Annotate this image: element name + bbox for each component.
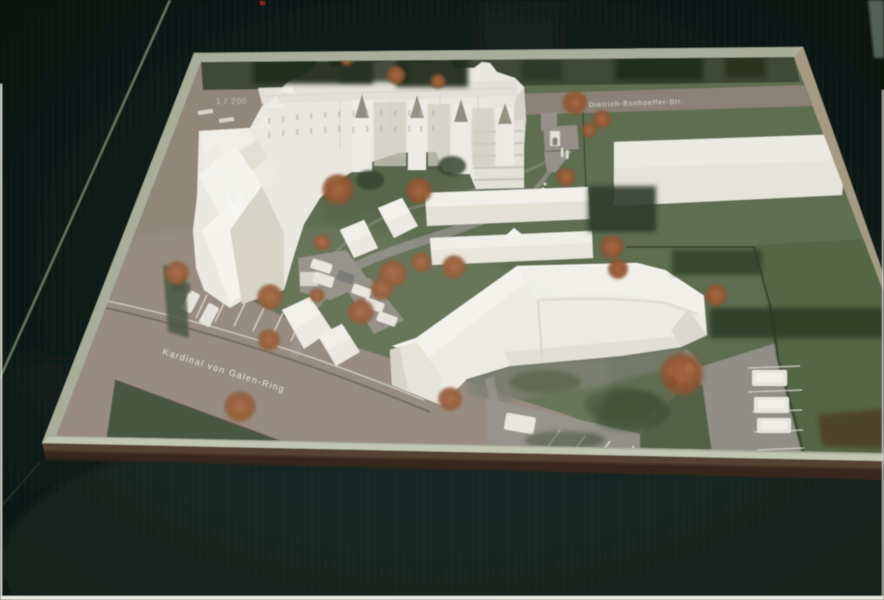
svg-text:1 / 200: 1 / 200 <box>216 97 247 106</box>
